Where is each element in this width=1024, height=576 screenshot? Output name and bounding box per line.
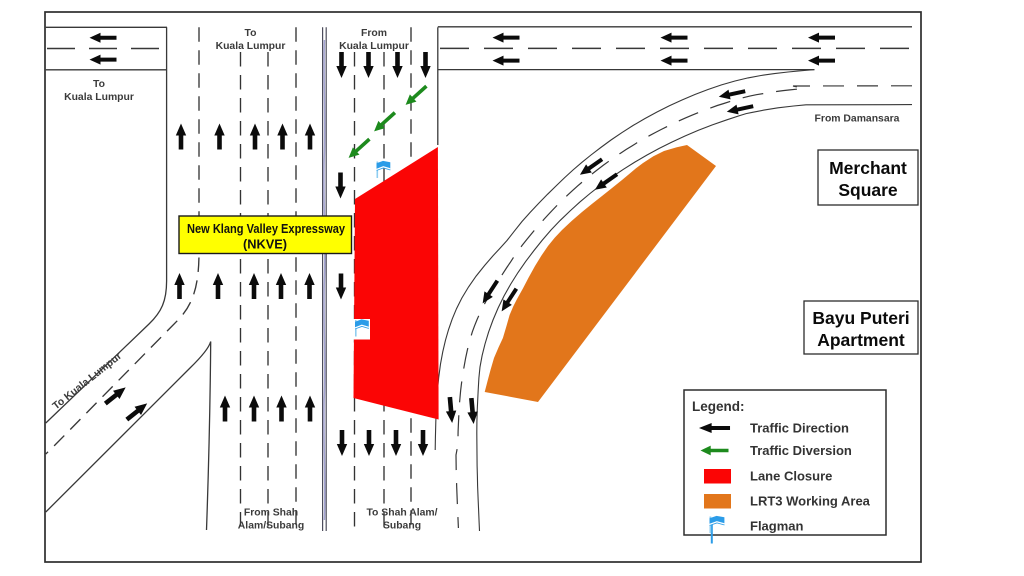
svg-text:Legend:: Legend: — [692, 399, 745, 414]
svg-text:New Klang Valley Expressway: New Klang Valley Expressway — [187, 221, 346, 236]
svg-text:To: To — [245, 28, 257, 39]
svg-text:Kuala Lumpur: Kuala Lumpur — [64, 92, 134, 103]
svg-text:LRT3 Working Area: LRT3 Working Area — [750, 494, 871, 509]
svg-text:Traffic Diversion: Traffic Diversion — [750, 443, 852, 458]
svg-text:To Shah Alam/: To Shah Alam/ — [366, 508, 437, 519]
svg-text:Square: Square — [838, 180, 898, 200]
svg-text:Traffic Direction: Traffic Direction — [750, 421, 849, 436]
svg-text:Flagman: Flagman — [750, 519, 804, 534]
svg-text:Merchant: Merchant — [829, 158, 907, 178]
svg-text:To: To — [93, 79, 105, 90]
svg-text:Lane Closure: Lane Closure — [750, 469, 832, 484]
svg-text:Subang: Subang — [383, 521, 421, 532]
svg-text:Kuala Lumpur: Kuala Lumpur — [216, 41, 286, 52]
svg-text:From Shah: From Shah — [244, 508, 298, 519]
svg-text:Kuala Lumpur: Kuala Lumpur — [339, 41, 409, 52]
svg-text:Bayu Puteri: Bayu Puteri — [812, 308, 909, 328]
svg-text:From: From — [361, 28, 387, 39]
svg-text:From Damansara: From Damansara — [815, 114, 900, 125]
svg-text:Alam/Subang: Alam/Subang — [238, 521, 304, 532]
svg-text:(NKVE): (NKVE) — [243, 237, 287, 252]
svg-text:Apartment: Apartment — [817, 330, 905, 350]
